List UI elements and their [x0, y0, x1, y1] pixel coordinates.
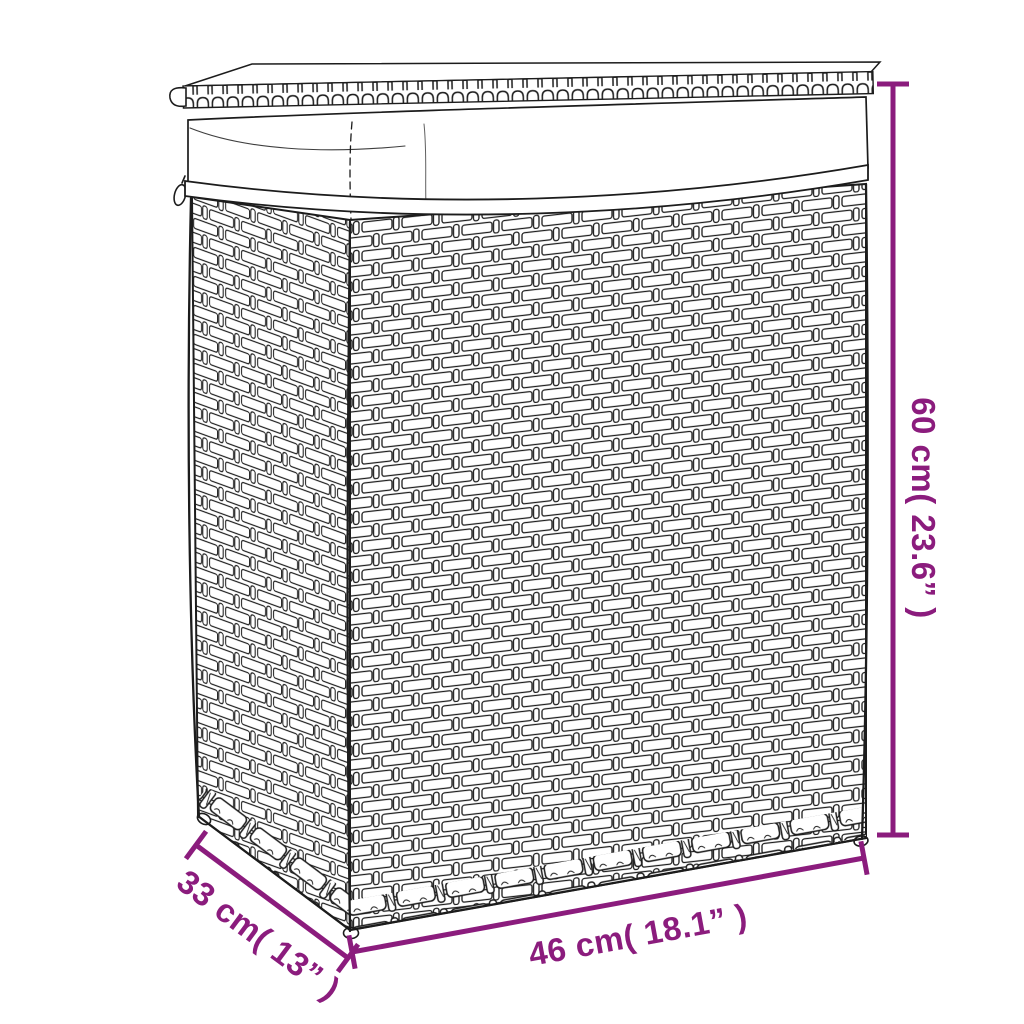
- width-dimension-label: 46 cm( 18.1” ): [526, 896, 751, 972]
- depth-top-cap: [186, 831, 206, 858]
- height-dimension: 60 cm( 23.6” ): [877, 84, 942, 835]
- width-right-cap: [861, 841, 867, 874]
- basket-front-face: [350, 184, 866, 930]
- height-dimension-label: 60 cm( 23.6” ): [905, 397, 942, 619]
- basket-dimension-illustration: 60 cm( 23.6” ) 46 cm( 18.1” ) 33 cm( 13”…: [0, 0, 1024, 1024]
- basket-body: [185, 165, 869, 939]
- product-dimension-diagram: 60 cm( 23.6” ) 46 cm( 18.1” ) 33 cm( 13”…: [0, 0, 1024, 1024]
- lid-left-tip: [170, 88, 186, 107]
- basket-illustration: [170, 62, 880, 939]
